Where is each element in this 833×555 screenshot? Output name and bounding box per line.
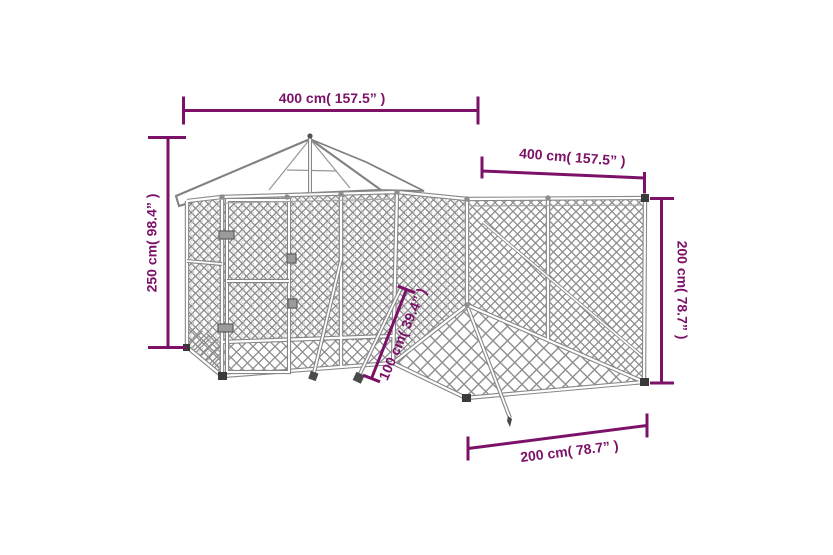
- svg-text:200 cm( 78.7” ): 200 cm( 78.7” ): [675, 241, 691, 340]
- svg-text:400 cm( 157.5” ): 400 cm( 157.5” ): [279, 90, 386, 106]
- svg-text:250 cm( 98.4” ): 250 cm( 98.4” ): [144, 194, 160, 293]
